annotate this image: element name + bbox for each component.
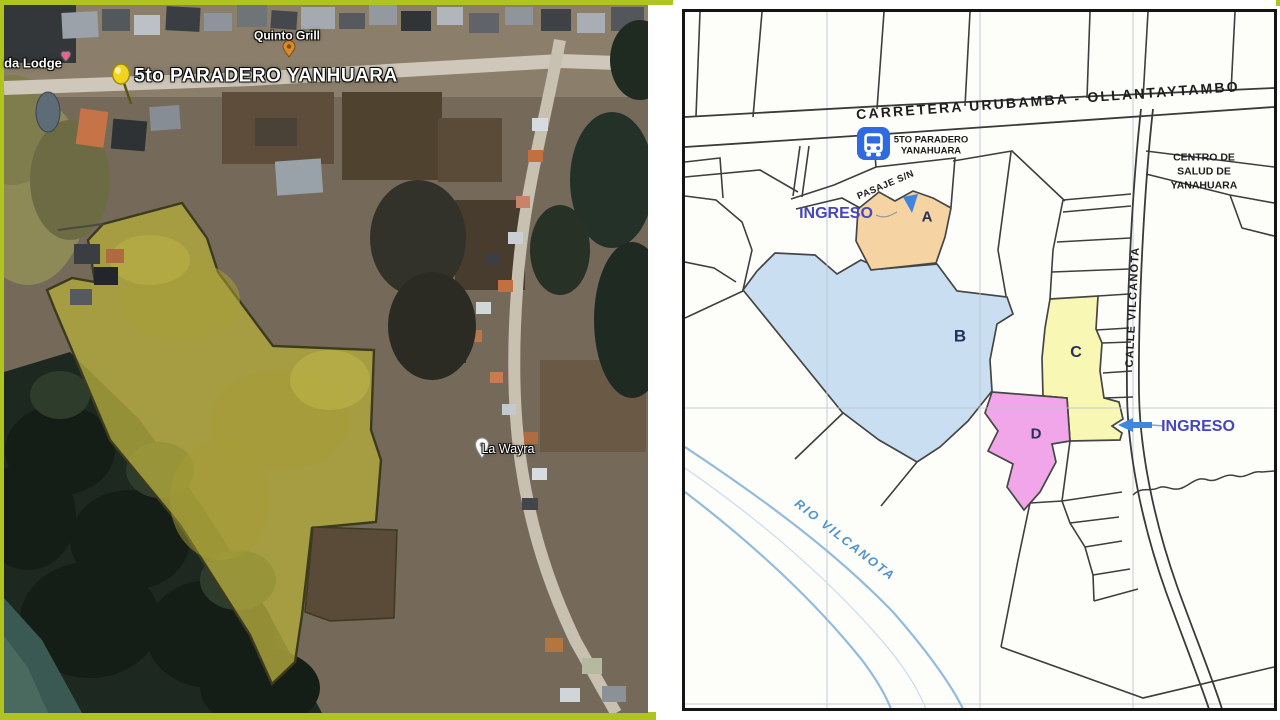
- pushpin-icon: [108, 62, 136, 113]
- label-health-center-line3: YANAHUARA: [1171, 179, 1238, 193]
- sat-label-bus-stop: 5to PARADERO YANHUARA: [134, 65, 398, 86]
- sat-label-wayra: La Wayra: [481, 442, 534, 456]
- label-ingreso-left: INGRESO: [799, 205, 873, 223]
- slide-canvas: da Lodge ♥ Quinto Grill 5to PARADERO YAN…: [0, 0, 1280, 720]
- label-health-center: CENTRO DE SALUD DE YANAHUARA: [1171, 151, 1238, 194]
- label-health-center-line1: CENTRO DE: [1171, 151, 1238, 165]
- lodge-heart-pin-icon: ♥: [61, 48, 71, 66]
- sat-label-lodge: da Lodge: [4, 57, 62, 72]
- lot-a-polygon: [856, 191, 951, 270]
- label-health-center-line2: SALUD DE: [1171, 165, 1238, 179]
- label-lot-d: D: [1031, 427, 1042, 444]
- grill-pin-icon: [282, 40, 296, 63]
- satellite-image: [0, 5, 670, 720]
- label-lot-b: B: [954, 326, 966, 345]
- bus-stop-icon: [857, 127, 890, 160]
- sat-label-grill: Quinto Grill: [254, 29, 320, 42]
- label-ingreso-right: INGRESO: [1161, 418, 1235, 436]
- label-bus-stop: 5TO PARADERO YANAHUARA: [894, 135, 969, 156]
- label-lot-a: A: [922, 210, 933, 227]
- plan-map: [685, 12, 1274, 709]
- label-lot-c: C: [1070, 344, 1082, 362]
- label-bus-stop-line2: YANAHUARA: [894, 146, 969, 157]
- map-comparison-graphic: [0, 0, 1280, 720]
